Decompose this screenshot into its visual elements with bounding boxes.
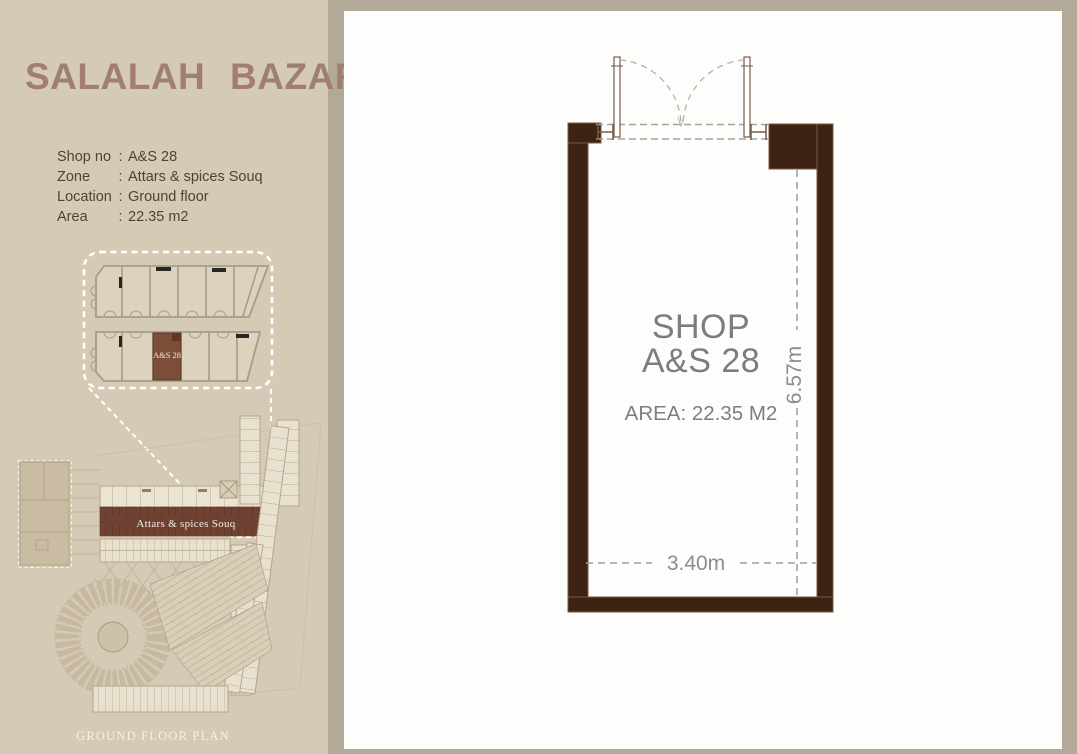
shop-labels: SHOP A&S 28 AREA: 22.35 M2 3.40m 6.57m — [625, 308, 806, 575]
depth-dimension-label: 6.57m — [783, 346, 806, 404]
plan-caption: GROUND FLOOR PLAN — [76, 729, 230, 743]
door-swing-arc-left — [620, 60, 681, 126]
inset-shop-label: A&S 28 — [153, 350, 181, 360]
width-dimension-label: 3.40m — [667, 552, 725, 575]
shop-title-line2: A&S 28 — [642, 342, 760, 380]
shop-title-line1: SHOP — [652, 308, 750, 346]
shop-floorplan-drawing: SHOP A&S 28 AREA: 22.35 M2 3.40m 6.57m — [344, 11, 1062, 749]
ground-floor-plan: Attars & spices Souq GROUND FLOOR PLAN — [19, 416, 322, 743]
dimension-lines — [586, 170, 816, 597]
sidebar: SALALAH BAZAR Shop no : A&S 28 Zone : At… — [0, 0, 328, 754]
shop-area-label: AREA: 22.35 M2 — [625, 402, 778, 425]
door-swing-arc-right — [683, 60, 744, 126]
entrance-door — [596, 57, 769, 140]
sidebar-graphics: A&S 28 — [0, 0, 328, 754]
inset-mini-plan: A&S 28 — [84, 252, 272, 388]
door-leaf-left — [614, 57, 620, 137]
zone-strip-label: Attars & spices Souq — [136, 518, 235, 530]
floorplan-panel: SHOP A&S 28 AREA: 22.35 M2 3.40m 6.57m — [344, 11, 1062, 749]
door-leaf-right — [744, 57, 750, 137]
